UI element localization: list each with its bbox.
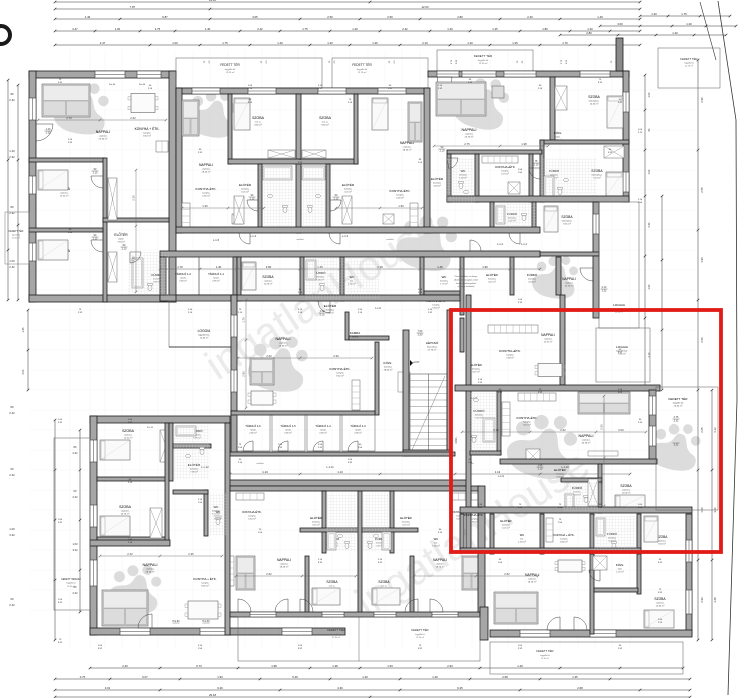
svg-text:KONYHA + ÉTK.: KONYHA + ÉTK.	[193, 576, 216, 581]
svg-text:konyha: konyha	[523, 421, 531, 423]
svg-text:KONYHA+ÉTK: KONYHA+ÉTK	[495, 164, 515, 169]
svg-text:80: 80	[10, 405, 14, 409]
svg-text:1.40: 1.40	[437, 265, 443, 269]
svg-text:2.93: 2.93	[447, 664, 453, 668]
svg-text:2.32: 2.32	[9, 603, 15, 607]
svg-text:FEDETT TERASZ: FEDETT TERASZ	[61, 578, 81, 581]
svg-text:2.32: 2.32	[72, 591, 78, 595]
svg-text:1.00: 1.00	[320, 310, 325, 313]
svg-text:1.49: 1.49	[517, 664, 523, 668]
svg-text:3.01: 3.01	[105, 686, 111, 690]
svg-text:1.90: 1.90	[482, 265, 488, 269]
svg-text:fagyálló bur.: fagyálló bur.	[198, 333, 210, 336]
svg-text:szellőző: szellőző	[296, 239, 304, 241]
svg-text:7.84 m²: 7.84 m²	[506, 356, 514, 359]
svg-text:2.50: 2.50	[600, 424, 604, 430]
svg-text:5.60 m²: 5.60 m²	[396, 196, 404, 199]
svg-text:L-1-11: L-1-11	[326, 465, 334, 469]
svg-text:2.50: 2.50	[418, 334, 423, 337]
svg-text:KONYHA-ÉTK.: KONYHA-ÉTK.	[196, 186, 217, 191]
svg-text:Pnt 90: Pnt 90	[173, 620, 181, 623]
svg-text:konyha: konyha	[501, 170, 509, 172]
svg-text:Pnt 60: Pnt 60	[139, 83, 146, 86]
svg-text:16.40 m²: 16.40 m²	[674, 404, 683, 407]
svg-text:1.90: 1.90	[398, 204, 404, 208]
svg-text:6.25: 6.25	[457, 686, 463, 690]
svg-text:1.20: 1.20	[651, 12, 657, 16]
svg-text:9.61 m²: 9.61 m²	[563, 222, 571, 225]
svg-text:kerámia: kerámia	[502, 523, 511, 526]
svg-text:2.75: 2.75	[464, 142, 470, 146]
svg-text:2.10: 2.10	[602, 286, 607, 289]
svg-text:18.05 m²: 18.05 m²	[384, 368, 393, 371]
svg-text:ker.: ker.	[520, 537, 524, 540]
svg-text:NAPPALI: NAPPALI	[525, 573, 539, 577]
svg-text:tároló: tároló	[355, 428, 361, 431]
svg-text:1.48: 1.48	[332, 664, 338, 668]
svg-text:12.31 m²: 12.31 m²	[541, 657, 549, 660]
svg-text:2.00: 2.00	[618, 428, 624, 432]
svg-text:2.10: 2.10	[440, 150, 445, 153]
svg-text:60: 60	[10, 597, 14, 601]
svg-text:2.62: 2.62	[266, 354, 272, 358]
svg-text:1.25: 1.25	[492, 27, 498, 31]
svg-text:KÖZL.: KÖZL.	[554, 131, 562, 135]
svg-text:lépcsőház: lépcsőház	[427, 346, 437, 348]
svg-text:9.60 m²: 9.60 m²	[321, 123, 329, 126]
svg-text:2.50: 2.50	[700, 337, 704, 343]
svg-text:L-1-3: L-1-3	[342, 234, 349, 238]
svg-text:12.31 m²: 12.31 m²	[332, 636, 340, 639]
svg-text:5.84 m²: 5.84 m²	[470, 520, 478, 523]
svg-text:7.87: 7.87	[130, 5, 136, 9]
svg-text:30.28 m²: 30.28 m²	[582, 441, 591, 444]
svg-text:LÉPCSŐ: LÉPCSŐ	[426, 340, 439, 345]
svg-text:4.47: 4.47	[72, 27, 78, 31]
svg-text:szaloncs: szaloncs	[264, 280, 273, 282]
svg-text:3.32: 3.32	[674, 420, 679, 423]
svg-text:3.32: 3.32	[9, 533, 15, 537]
svg-text:2.55: 2.55	[132, 256, 136, 262]
svg-text:NAPPALI: NAPPALI	[541, 333, 555, 337]
svg-text:25.30 m²: 25.30 m²	[99, 137, 108, 140]
svg-text:tároló: tároló	[320, 428, 326, 431]
svg-text:2.10: 2.10	[122, 248, 127, 251]
svg-text:2.42: 2.42	[257, 27, 263, 31]
svg-text:2.65: 2.65	[700, 427, 704, 433]
svg-text:konyha: konyha	[506, 354, 514, 356]
svg-text:kerámia: kerámia	[440, 279, 449, 282]
svg-text:lamináló p.: lamináló p.	[562, 220, 573, 222]
svg-text:kerámia: kerámia	[528, 277, 537, 280]
svg-text:szaloncs: szaloncs	[582, 439, 591, 441]
svg-text:4.21 m²: 4.21 m²	[344, 190, 352, 193]
svg-text:2.10: 2.10	[93, 238, 98, 241]
svg-text:NAPPALI: NAPPALI	[562, 277, 576, 281]
svg-text:SZOBA: SZOBA	[378, 580, 390, 584]
svg-text:2.32: 2.32	[9, 98, 15, 102]
svg-text:14.72 m²: 14.72 m²	[565, 284, 574, 287]
svg-text:2.42: 2.42	[402, 27, 408, 31]
svg-text:1.50 m²: 1.50 m²	[554, 138, 562, 141]
svg-text:2.62: 2.62	[560, 428, 566, 432]
svg-text:1.13: 1.13	[495, 470, 501, 474]
svg-text:2.62: 2.62	[504, 572, 510, 576]
svg-text:közl.: közl.	[618, 568, 623, 570]
svg-text:18.26 m²: 18.26 m²	[202, 170, 211, 173]
svg-text:1.20: 1.20	[467, 41, 473, 45]
svg-text:konyha: konyha	[432, 304, 440, 306]
svg-text:12.31 m²: 12.31 m²	[226, 71, 235, 74]
svg-text:4.43 m²: 4.43 m²	[528, 280, 536, 283]
svg-text:1.70: 1.70	[562, 41, 568, 45]
svg-text:26.43 m²: 26.43 m²	[279, 344, 288, 347]
svg-text:1.00: 1.00	[72, 542, 78, 546]
svg-text:konyha: konyha	[560, 538, 568, 540]
svg-text:18.26 m²: 18.26 m²	[528, 580, 537, 583]
svg-text:1.50: 1.50	[648, 92, 651, 97]
svg-text:15.41 m²: 15.41 m²	[67, 585, 75, 588]
svg-text:2.32: 2.32	[9, 155, 15, 159]
svg-text:1.00: 1.00	[172, 41, 178, 45]
svg-text:2.55: 2.55	[700, 187, 704, 193]
svg-text:szaloncs: szaloncs	[279, 342, 288, 344]
svg-text:ELŐTÉR: ELŐTÉR	[431, 176, 444, 181]
svg-text:lapostető: lapostető	[12, 234, 21, 237]
svg-text:szaloncs: szaloncs	[121, 510, 130, 512]
svg-text:1.60 m²: 1.60 m²	[432, 544, 440, 547]
svg-text:ELŐTÉR: ELŐTÉR	[500, 518, 511, 523]
svg-text:26.76 m²: 26.76 m²	[465, 135, 474, 138]
svg-text:szaloncs: szaloncs	[202, 168, 211, 170]
svg-text:2.70: 2.70	[66, 116, 72, 120]
svg-text:2.00: 2.00	[22, 369, 25, 374]
svg-text:szaloncs: szaloncs	[99, 135, 108, 137]
svg-text:2.10: 2.10	[648, 352, 651, 357]
svg-text:12.03: 12.03	[422, 5, 429, 9]
svg-text:2.80 m²: 2.80 m²	[354, 431, 362, 434]
svg-text:KONYHA-ÉTK.: KONYHA-ÉTK.	[242, 509, 262, 514]
svg-text:2.35: 2.35	[188, 552, 194, 556]
svg-text:tároló: tároló	[285, 428, 291, 431]
svg-text:SZOBA: SZOBA	[119, 505, 132, 509]
svg-text:8.62 m²: 8.62 m²	[143, 134, 151, 137]
svg-text:1.13: 1.13	[262, 470, 268, 474]
svg-text:L-1-9: L-1-9	[498, 475, 504, 478]
svg-text:szaloncs: szaloncs	[124, 434, 133, 436]
svg-text:+2.67: +2.67	[413, 360, 420, 364]
svg-text:80: 80	[10, 92, 14, 96]
svg-text:1.98: 1.98	[521, 142, 527, 146]
svg-text:NAPPALI: NAPPALI	[143, 563, 158, 567]
svg-text:1.40: 1.40	[277, 41, 283, 45]
svg-text:5.60 m²: 5.60 m²	[202, 194, 210, 197]
svg-text:1.20: 1.20	[672, 31, 678, 35]
svg-text:szaloncs: szaloncs	[60, 192, 69, 194]
svg-text:szellőző: szellőző	[256, 463, 264, 465]
svg-text:12.52 m²: 12.52 m²	[60, 194, 69, 197]
svg-text:fagyálló kő: fagyálló kő	[673, 402, 684, 404]
svg-text:kerámia: kerámia	[402, 520, 411, 523]
svg-text:4.21 m²: 4.21 m²	[502, 526, 510, 529]
svg-text:1.70 m²: 1.70 m²	[440, 282, 448, 285]
svg-text:SZOBA: SZOBA	[122, 429, 135, 433]
svg-text:12.75 m²: 12.75 m²	[358, 71, 367, 74]
svg-text:fagyálló kő: fagyálló kő	[540, 655, 550, 657]
svg-text:2.48: 2.48	[713, 597, 717, 603]
svg-text:2.32: 2.32	[602, 290, 607, 293]
svg-text:6.07: 6.07	[142, 675, 148, 679]
svg-text:kerámia: kerámia	[433, 181, 442, 184]
svg-text:9.60 m²: 9.60 m²	[254, 123, 262, 126]
svg-text:kerámia: kerámia	[556, 472, 565, 475]
svg-text:kerámia: kerámia	[384, 365, 393, 368]
svg-text:FEDETT TÉR: FEDETT TÉR	[680, 56, 697, 61]
svg-text:0.75: 0.75	[80, 675, 86, 679]
svg-text:60: 60	[10, 467, 14, 471]
svg-text:2.80: 2.80	[457, 15, 463, 19]
svg-text:1.45: 1.45	[572, 675, 578, 679]
svg-text:1.75: 1.75	[302, 27, 308, 31]
svg-text:2.42: 2.42	[127, 552, 133, 556]
svg-text:NAPPALI: NAPPALI	[276, 337, 291, 341]
svg-text:2.68: 2.68	[502, 675, 508, 679]
svg-text:4.21 m²: 4.21 m²	[241, 190, 249, 193]
svg-text:1.90: 1.90	[202, 204, 208, 208]
svg-text:kerámia: kerámia	[312, 520, 321, 523]
svg-text:NAPPALI: NAPPALI	[462, 128, 477, 132]
svg-text:2.90: 2.90	[333, 354, 339, 358]
svg-text:konyha: konyha	[470, 518, 478, 520]
svg-text:SZOBA: SZOBA	[654, 597, 666, 601]
svg-text:12.31 m²: 12.31 m²	[479, 62, 488, 65]
svg-text:kiváló szerelvényekkel: kiváló szerelvényekkel	[456, 283, 476, 285]
svg-text:2.50: 2.50	[387, 15, 393, 19]
svg-text:11.23 m²: 11.23 m²	[264, 282, 273, 285]
svg-text:FEDETT TÉR: FEDETT TÉR	[220, 62, 240, 67]
svg-text:közl.: közl.	[556, 136, 561, 138]
svg-text:2.32: 2.32	[9, 211, 15, 215]
svg-text:2.10: 2.10	[422, 41, 428, 45]
svg-text:1.49: 1.49	[597, 15, 603, 19]
svg-text:1.40: 1.40	[362, 675, 368, 679]
svg-text:3.47 m²: 3.47 m²	[472, 370, 480, 373]
svg-text:2.80 m²: 2.80 m²	[249, 431, 257, 434]
svg-text:NAPPALI: NAPPALI	[579, 434, 594, 438]
svg-text:konyha: konyha	[202, 192, 210, 194]
svg-text:5.12: 5.12	[713, 427, 717, 433]
svg-text:SZOBA: SZOBA	[561, 215, 573, 219]
svg-text:1.53: 1.53	[387, 664, 393, 668]
svg-text:fagyálló kő: fagyálló kő	[357, 69, 368, 71]
svg-text:0.73: 0.73	[196, 664, 202, 668]
svg-text:konyha: konyha	[201, 582, 209, 584]
svg-text:9.62 m²: 9.62 m²	[336, 374, 344, 377]
svg-text:1.25: 1.25	[512, 41, 518, 45]
svg-text:18.26 m²: 18.26 m²	[403, 148, 412, 151]
svg-text:13.34 m²: 13.34 m²	[656, 604, 665, 607]
svg-text:2.85 m²: 2.85 m²	[212, 279, 220, 282]
svg-text:2.30: 2.30	[648, 222, 651, 227]
svg-text:8.60 m²: 8.60 m²	[560, 540, 568, 543]
svg-text:3.75: 3.75	[674, 416, 679, 419]
svg-text:konyha: konyha	[248, 515, 256, 517]
svg-text:szaloncs: szaloncs	[656, 602, 665, 604]
svg-text:18.26 m²: 18.26 m²	[436, 565, 445, 568]
svg-text:FEDETT TÉR: FEDETT TÉR	[327, 627, 344, 632]
svg-text:3.05: 3.05	[252, 15, 258, 19]
svg-text:12.31 m²: 12.31 m²	[416, 636, 424, 639]
svg-text:2.10: 2.10	[250, 198, 255, 201]
svg-text:szaloncs: szaloncs	[146, 568, 155, 570]
svg-text:ELŐTÉR: ELŐTÉR	[324, 303, 337, 308]
svg-text:2.32: 2.32	[9, 411, 15, 415]
svg-text:ELŐTÉR: ELŐTÉR	[342, 182, 355, 187]
svg-text:tároló: tároló	[250, 428, 256, 431]
svg-text:SZOBA: SZOBA	[326, 580, 338, 584]
svg-text:NAPPALI: NAPPALI	[277, 558, 291, 562]
svg-text:2.30: 2.30	[132, 195, 136, 201]
svg-text:ism. p.: ism. p.	[322, 121, 329, 123]
svg-text:29.18: 29.18	[209, 693, 216, 697]
svg-text:KONYHA+ÉTK.: KONYHA+ÉTK.	[499, 348, 521, 353]
svg-text:fagyálló kő: fagyálló kő	[66, 583, 76, 585]
svg-text:FEDETT TÉR: FEDETT TÉR	[474, 53, 493, 58]
svg-text:2.10: 2.10	[93, 172, 98, 175]
svg-text:L-1-1: L-1-1	[521, 242, 528, 246]
svg-text:80: 80	[10, 205, 14, 209]
svg-text:ELŐTÉR: ELŐTÉR	[486, 272, 498, 277]
svg-text:4.21 m²: 4.21 m²	[402, 523, 410, 526]
svg-text:4.21 m²: 4.21 m²	[312, 523, 320, 526]
svg-text:1.40: 1.40	[205, 27, 211, 31]
svg-text:ELŐTÉR: ELŐTÉR	[239, 182, 252, 187]
svg-text:1.06: 1.06	[538, 464, 543, 467]
svg-text:1.90: 1.90	[700, 257, 704, 263]
svg-text:9.60 m²: 9.60 m²	[201, 584, 209, 587]
svg-text:1.75: 1.75	[222, 41, 228, 45]
svg-text:FEDETT TÉR: FEDETT TÉR	[536, 648, 553, 653]
svg-text:SZOBA: SZOBA	[262, 275, 274, 279]
svg-text:SZOBA: SZOBA	[588, 95, 600, 99]
svg-text:4.21 m²: 4.21 m²	[488, 280, 496, 283]
svg-text:2.62: 2.62	[130, 116, 136, 120]
svg-text:12.75 m²: 12.75 m²	[685, 65, 693, 68]
svg-text:1.60 m²: 1.60 m²	[518, 540, 526, 543]
svg-text:SZOBA: SZOBA	[620, 484, 632, 488]
svg-text:2.32: 2.32	[9, 265, 15, 269]
svg-text:Pnt 60: Pnt 60	[203, 620, 211, 623]
svg-text:1.20: 1.20	[447, 27, 453, 31]
svg-text:18.26 m²: 18.26 m²	[280, 565, 289, 568]
svg-text:KÖZL.: KÖZL.	[616, 563, 625, 567]
svg-text:1.49: 1.49	[85, 15, 91, 19]
svg-text:lamináló p.: lamináló p.	[589, 100, 600, 102]
svg-text:WC: WC	[442, 275, 447, 279]
svg-text:2.32: 2.32	[9, 473, 15, 477]
svg-text:9.43 m²: 9.43 m²	[658, 542, 666, 545]
svg-text:KONYHA-ÉTK.: KONYHA-ÉTK.	[330, 366, 351, 371]
svg-text:4.39: 4.39	[337, 686, 343, 690]
svg-text:2.32: 2.32	[72, 451, 78, 455]
svg-text:6.29: 6.29	[217, 686, 223, 690]
svg-text:SZOBA: SZOBA	[319, 116, 332, 120]
svg-text:2.50: 2.50	[327, 15, 333, 19]
svg-text:szaloncs: szaloncs	[436, 563, 445, 565]
svg-text:1.50: 1.50	[648, 169, 651, 174]
svg-text:13.73 m²: 13.73 m²	[121, 512, 130, 515]
svg-text:KONYHA-ÉTK.: KONYHA-ÉTK.	[390, 188, 411, 193]
svg-text:1.93: 1.93	[217, 675, 223, 679]
svg-text:2.62: 2.62	[266, 572, 272, 576]
svg-text:2.10: 2.10	[538, 468, 543, 471]
svg-text:KÖZL.: KÖZL.	[455, 436, 458, 443]
svg-text:KONYHA-ÉTK.: KONYHA-ÉTK.	[465, 512, 484, 517]
svg-text:1.13: 1.13	[337, 470, 343, 474]
svg-text:konyha: konyha	[336, 372, 344, 374]
svg-text:2.80 m²: 2.80 m²	[179, 279, 187, 282]
svg-text:szaloncs: szaloncs	[280, 563, 289, 565]
svg-text:1.40: 1.40	[352, 27, 358, 31]
svg-text:kerámia: kerámia	[344, 187, 353, 190]
svg-text:WC: WC	[520, 533, 525, 537]
svg-text:kerámia: kerámia	[241, 187, 250, 190]
svg-text:2.68: 2.68	[577, 686, 583, 690]
svg-text:kamra: kamra	[352, 335, 359, 338]
svg-text:fagyálló kő: fagyálló kő	[415, 634, 425, 636]
svg-text:1.00: 1.00	[115, 27, 121, 31]
svg-text:ism. p.: ism. p.	[255, 121, 262, 123]
svg-text:konyha: konyha	[396, 194, 404, 196]
svg-text:LOGGIA: LOGGIA	[613, 303, 626, 307]
svg-text:ker.: ker.	[434, 541, 438, 544]
svg-text:1.98: 1.98	[271, 664, 277, 668]
svg-text:SZOBA: SZOBA	[252, 116, 265, 120]
svg-text:Pénzváltásként az előnye: Pénzváltásként az előnye	[455, 275, 479, 278]
svg-text:10.41 m²: 10.41 m²	[12, 237, 20, 240]
svg-text:L-1-2: L-1-2	[497, 242, 504, 246]
svg-text:2.40: 2.40	[527, 15, 533, 19]
svg-text:WC: WC	[434, 537, 439, 541]
svg-text:ELŐTÉR: ELŐTÉR	[114, 232, 128, 237]
svg-text:11.37 m²: 11.37 m²	[544, 340, 553, 343]
svg-text:2.60: 2.60	[266, 265, 272, 269]
svg-text:NAPPALI: NAPPALI	[96, 130, 111, 134]
svg-text:tároló: tároló	[180, 276, 186, 279]
svg-text:KAMRA: KAMRA	[350, 331, 360, 335]
svg-text:1.70: 1.70	[242, 317, 246, 323]
svg-text:5.75 m²: 5.75 m²	[501, 172, 509, 175]
svg-text:5.60 m²: 5.60 m²	[248, 517, 256, 520]
svg-text:L-1-4: L-1-4	[250, 234, 257, 238]
svg-text:2.32: 2.32	[46, 132, 51, 135]
svg-text:1.26: 1.26	[372, 41, 378, 45]
svg-text:KONYHA-ÉTK.: KONYHA-ÉTK.	[517, 415, 538, 420]
svg-text:2.80 m²: 2.80 m²	[319, 431, 327, 434]
svg-text:2.80: 2.80	[586, 31, 592, 35]
svg-text:1.45: 1.45	[22, 327, 25, 332]
svg-text:KÖZL.: KÖZL.	[384, 361, 393, 365]
svg-text:ELŐTÉR: ELŐTÉR	[310, 515, 322, 520]
svg-text:L-1-5: L-1-5	[213, 238, 220, 242]
svg-text:11.63 m²: 11.63 m²	[622, 491, 631, 494]
svg-text:2.70: 2.70	[493, 428, 499, 432]
svg-text:6.87: 6.87	[162, 15, 168, 19]
svg-text:2.80: 2.80	[242, 371, 246, 377]
svg-text:28.10 m²: 28.10 m²	[146, 570, 155, 573]
svg-text:1.80: 1.80	[542, 27, 548, 31]
svg-text:ism. p.: ism. p.	[329, 585, 336, 587]
